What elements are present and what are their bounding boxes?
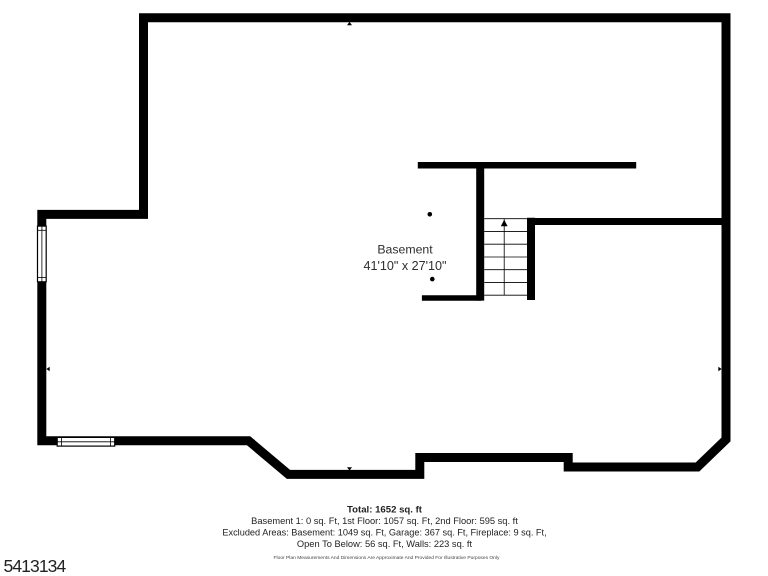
svg-text:5413134: 5413134 <box>4 556 67 576</box>
svg-text:Open To Below: 56 sq. Ft, Wall: Open To Below: 56 sq. Ft, Walls: 223 sq.… <box>297 539 473 549</box>
svg-text:Excluded Areas: Basement: 1049: Excluded Areas: Basement: 1049 sq. Ft, G… <box>222 528 546 538</box>
svg-text:41'10" x 27'10": 41'10" x 27'10" <box>363 259 446 273</box>
svg-text:Total: 1652 sq. ft: Total: 1652 sq. ft <box>347 505 423 516</box>
svg-text:Basement: Basement <box>377 243 433 257</box>
svg-text:Floor Plan Measurements And Di: Floor Plan Measurements And Dimensions A… <box>274 555 500 561</box>
svg-text:Basement 1: 0 sq. Ft, 1st Floo: Basement 1: 0 sq. Ft, 1st Floor: 1057 sq… <box>251 516 518 526</box>
